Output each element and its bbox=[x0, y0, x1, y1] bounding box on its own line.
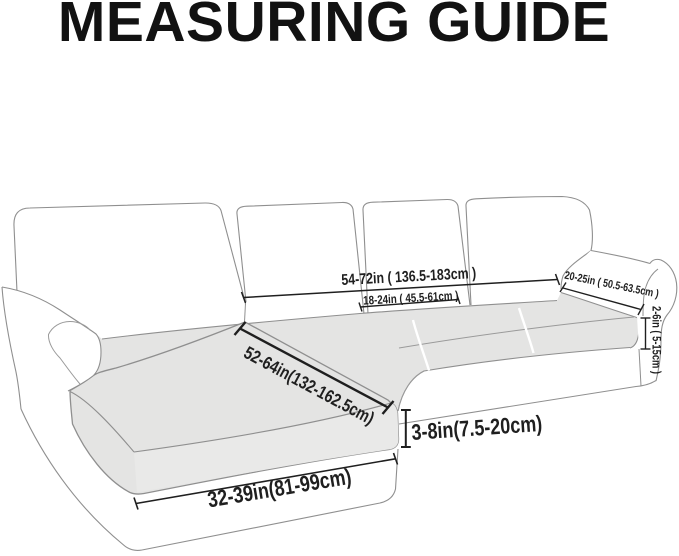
svg-text:MEASURING GUIDE: MEASURING GUIDE bbox=[58, 0, 610, 54]
svg-text:2-6in ( 5-15cm ): 2-6in ( 5-15cm ) bbox=[649, 306, 662, 374]
